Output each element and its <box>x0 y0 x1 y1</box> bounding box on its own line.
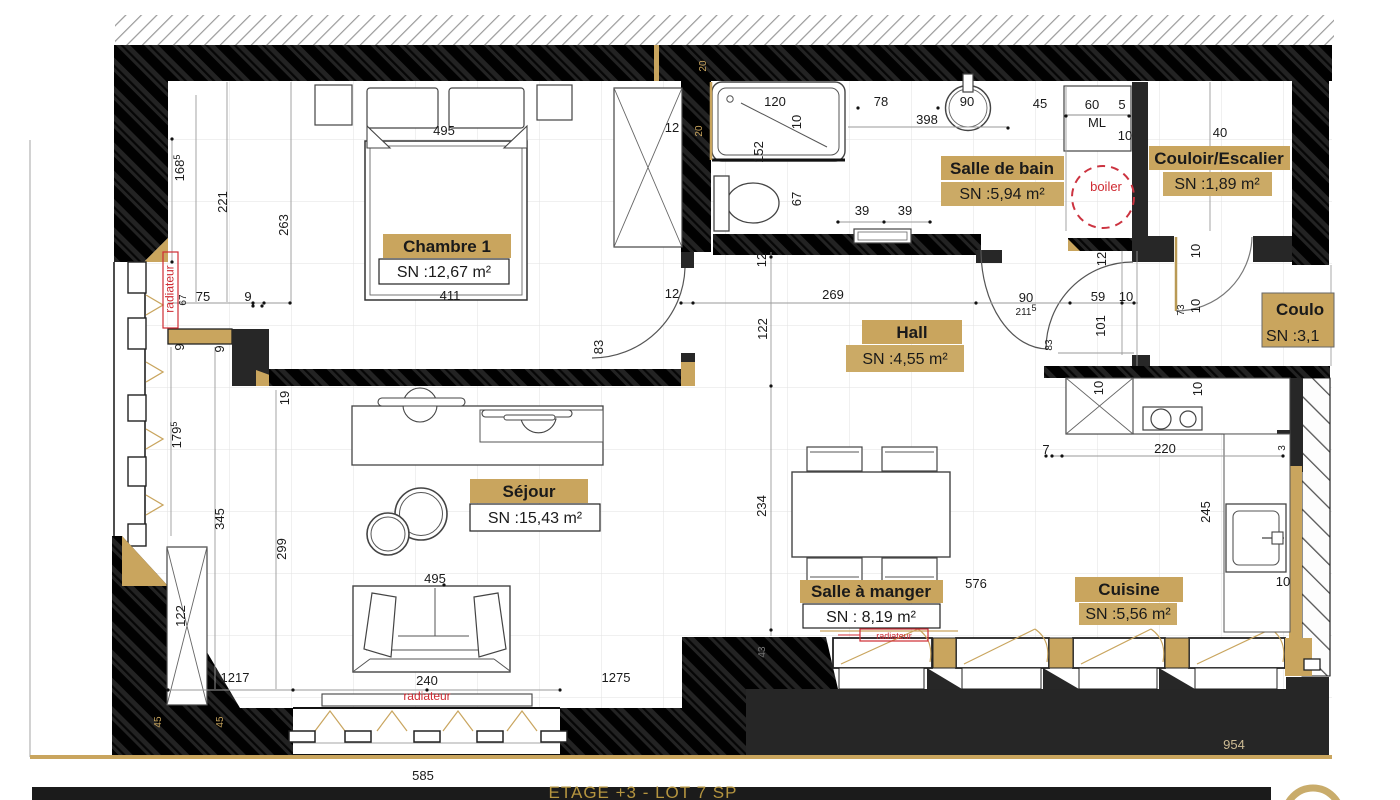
svg-text:1217: 1217 <box>221 670 250 685</box>
svg-text:73: 73 <box>1176 304 1187 316</box>
svg-text:221: 221 <box>215 191 230 213</box>
svg-text:12: 12 <box>754 253 769 267</box>
svg-text:954: 954 <box>1223 737 1245 752</box>
svg-text:SN :12,67 m²: SN :12,67 m² <box>397 264 492 281</box>
svg-text:39: 39 <box>855 203 869 218</box>
svg-text:398: 398 <box>916 112 938 127</box>
svg-text:radiateur: radiateur <box>876 631 912 641</box>
svg-text:40: 40 <box>1213 125 1227 140</box>
svg-text:Chambre 1: Chambre 1 <box>403 237 491 256</box>
svg-text:boiler: boiler <box>1090 179 1122 194</box>
svg-text:43: 43 <box>757 646 768 658</box>
svg-text:10: 10 <box>1190 382 1205 396</box>
svg-text:122: 122 <box>173 605 188 627</box>
svg-text:SN :4,55 m²: SN :4,55 m² <box>862 351 948 368</box>
svg-text:10: 10 <box>789 115 804 129</box>
svg-text:12: 12 <box>665 120 679 135</box>
svg-text:78: 78 <box>874 94 888 109</box>
svg-text:Séjour: Séjour <box>503 482 556 501</box>
svg-text:122: 122 <box>755 318 770 340</box>
svg-text:9: 9 <box>172 343 187 350</box>
svg-text:20: 20 <box>694 125 705 137</box>
svg-text:83: 83 <box>1044 339 1055 351</box>
svg-text:39: 39 <box>898 203 912 218</box>
svg-text:Salle à manger: Salle à manger <box>811 582 931 601</box>
svg-text:45: 45 <box>1033 96 1047 111</box>
svg-text:120: 120 <box>764 94 786 109</box>
svg-text:9: 9 <box>244 289 251 304</box>
svg-text:90: 90 <box>960 94 974 109</box>
svg-text:Salle de bain: Salle de bain <box>950 159 1054 178</box>
svg-text:Cuisine: Cuisine <box>1098 580 1159 599</box>
svg-text:10: 10 <box>1118 128 1132 143</box>
svg-text:75: 75 <box>196 289 210 304</box>
svg-text:9: 9 <box>212 345 227 352</box>
svg-text:SN :5,94 m²: SN :5,94 m² <box>959 186 1045 203</box>
svg-text:245: 245 <box>1198 501 1213 523</box>
svg-text:240: 240 <box>416 673 438 688</box>
svg-text:576: 576 <box>965 576 987 591</box>
svg-text:ETAGE +3 - LOT 7 SP: ETAGE +3 - LOT 7 SP <box>549 783 738 800</box>
svg-text:495: 495 <box>424 571 446 586</box>
svg-text:ML: ML <box>1088 115 1106 130</box>
svg-text:Hall: Hall <box>896 323 927 342</box>
svg-text:234: 234 <box>754 495 769 517</box>
svg-text:SN :1,89 m²: SN :1,89 m² <box>1174 176 1260 193</box>
svg-text:Couloir/Escalier: Couloir/Escalier <box>1154 149 1284 168</box>
svg-text:radiateur: radiateur <box>403 689 450 703</box>
svg-text:19: 19 <box>277 391 292 405</box>
svg-text:45: 45 <box>153 716 164 728</box>
svg-text:1275: 1275 <box>602 670 631 685</box>
svg-text:3: 3 <box>1277 445 1288 451</box>
svg-text:585: 585 <box>412 768 434 783</box>
svg-text:67: 67 <box>178 294 189 306</box>
svg-text:67: 67 <box>789 192 804 206</box>
svg-text:radiateur: radiateur <box>163 265 177 312</box>
svg-text:10: 10 <box>1188 299 1203 313</box>
svg-text:5: 5 <box>1118 97 1125 112</box>
svg-text:411: 411 <box>440 288 461 303</box>
svg-text:20: 20 <box>698 60 709 72</box>
svg-text:12: 12 <box>1094 252 1109 266</box>
svg-text:10: 10 <box>1188 244 1203 258</box>
svg-text:10: 10 <box>1091 381 1106 395</box>
svg-text:269: 269 <box>822 287 844 302</box>
svg-text:10: 10 <box>1276 574 1290 589</box>
svg-text:SN :5,56 m²: SN :5,56 m² <box>1085 606 1171 623</box>
svg-text:12: 12 <box>665 286 679 301</box>
svg-text:152: 152 <box>751 141 766 163</box>
svg-text:Coulo: Coulo <box>1276 300 1324 319</box>
svg-text:10: 10 <box>1119 289 1133 304</box>
svg-text:60: 60 <box>1085 97 1099 112</box>
svg-text:220: 220 <box>1154 441 1176 456</box>
svg-text:299: 299 <box>274 538 289 560</box>
svg-text:83: 83 <box>591 340 606 354</box>
svg-text:345: 345 <box>212 508 227 530</box>
svg-text:263: 263 <box>276 214 291 236</box>
svg-text:SN :3,1: SN :3,1 <box>1266 328 1319 345</box>
svg-text:495: 495 <box>433 123 455 138</box>
svg-text:45: 45 <box>215 716 226 728</box>
svg-text:101: 101 <box>1093 315 1108 337</box>
svg-text:SN :15,43 m²: SN :15,43 m² <box>488 510 583 527</box>
svg-text:59: 59 <box>1091 289 1105 304</box>
svg-text:SN : 8,19 m²: SN : 8,19 m² <box>826 609 916 626</box>
svg-text:7: 7 <box>1042 442 1049 457</box>
